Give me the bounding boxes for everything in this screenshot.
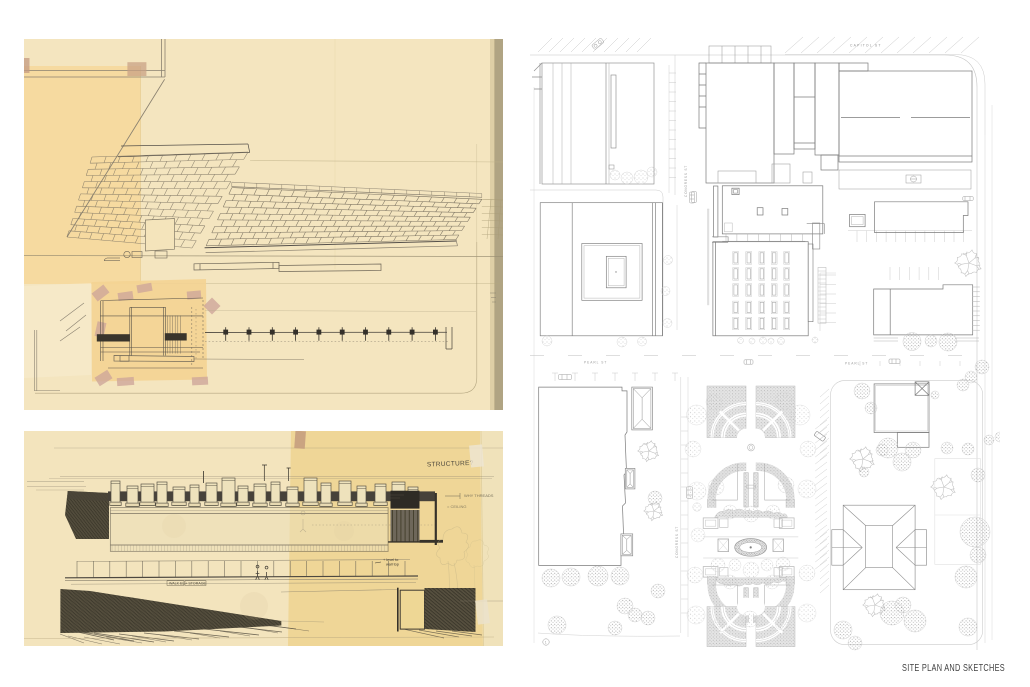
svg-text:PEARL ST: PEARL ST — [584, 361, 607, 365]
svg-text:WHY THREADS: WHY THREADS — [464, 493, 494, 498]
svg-text:WALK EL + STORAGE: WALK EL + STORAGE — [169, 582, 207, 586]
svg-text:= CEILING: = CEILING — [447, 504, 466, 509]
svg-text:1: 1 — [545, 641, 547, 645]
svg-text:CONGRESS ST: CONGRESS ST — [684, 165, 688, 197]
svg-text:CONGRESS ST: CONGRESS ST — [675, 526, 679, 558]
svg-text:PEARL ST: PEARL ST — [845, 362, 868, 366]
svg-text:+ level to: + level to — [383, 558, 398, 562]
svg-text:CAPITOL ST: CAPITOL ST — [850, 44, 882, 48]
svg-text:wall top: wall top — [386, 563, 399, 567]
